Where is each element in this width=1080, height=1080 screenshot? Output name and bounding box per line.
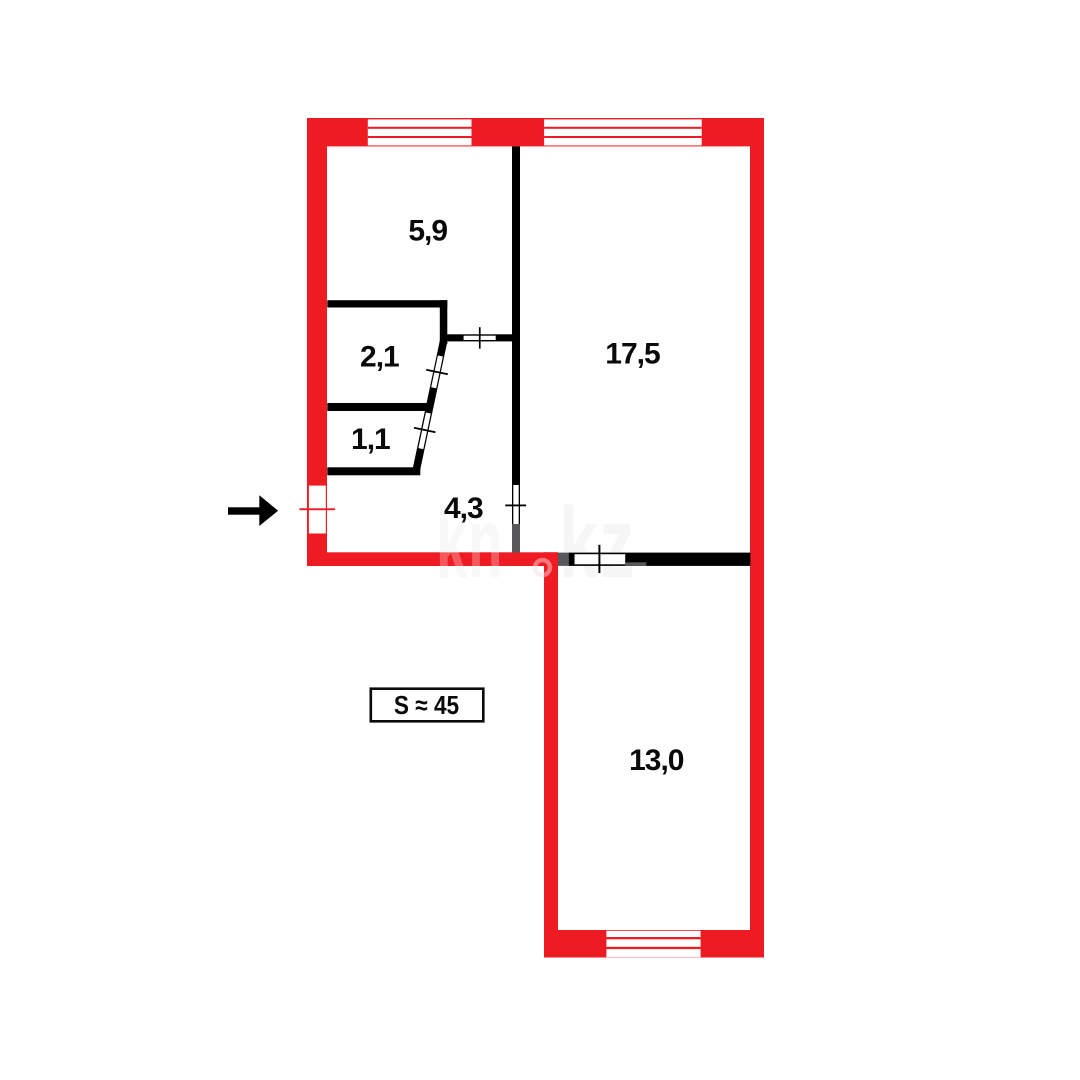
svg-text:13,0: 13,0 [629,744,684,777]
svg-text:1,1: 1,1 [351,423,390,456]
svg-text:2,1: 2,1 [360,341,399,374]
svg-text:4,3: 4,3 [444,492,483,525]
svg-text:17,5: 17,5 [605,337,660,370]
svg-text:5,9: 5,9 [408,215,447,248]
svg-text:kz: kz [559,488,636,599]
svg-text:S ≈ 45: S ≈ 45 [394,692,459,721]
